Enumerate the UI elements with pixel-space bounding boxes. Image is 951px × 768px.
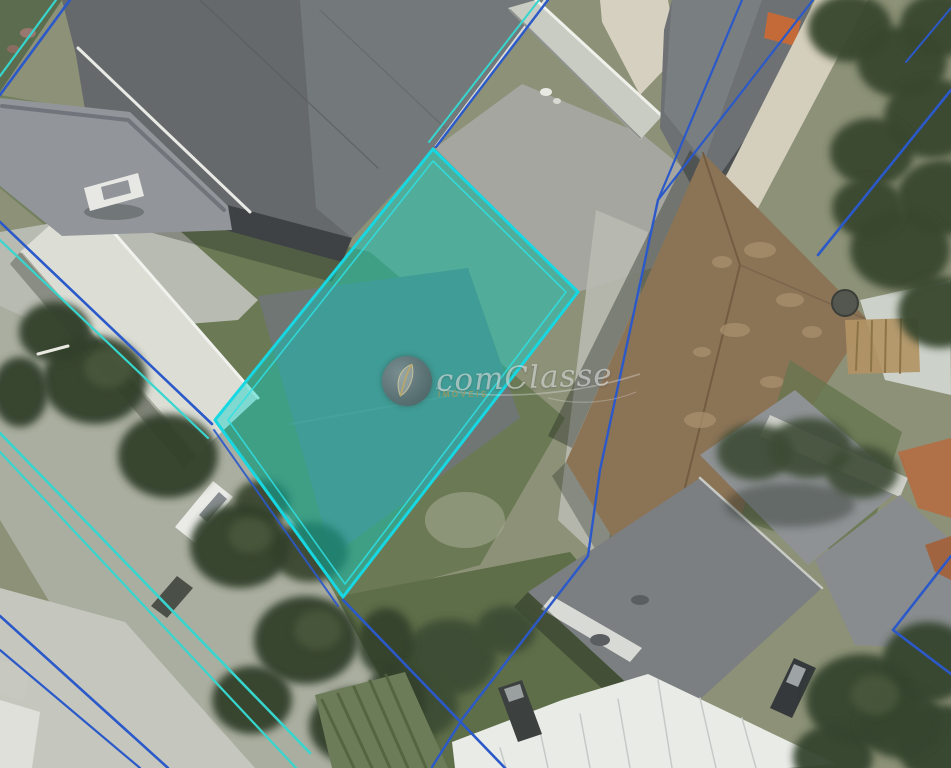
deck-slat [885,320,886,372]
roof-vent [631,595,649,605]
tree-shadow [725,483,855,527]
deck-slat [871,321,872,371]
tile-mottle [760,376,784,388]
tile-mottle [744,242,776,258]
tree-highlight [851,675,899,715]
tile-mottle [720,323,750,337]
tree-highlight [294,610,342,650]
pavement-mark [553,98,561,104]
tile-mottle [712,256,732,268]
tile-mottle [776,293,804,307]
tile-mottle [693,347,711,357]
deck-slat [900,319,901,373]
street-tree [118,414,218,498]
tree-canopy [476,606,536,654]
tree-highlight [228,517,272,553]
dirt-patch [425,492,505,548]
roof-vent [590,634,610,646]
street-tree [19,302,91,362]
tree-canopy [832,178,904,238]
aerial-photo: comClasse IMÓVEIS [0,0,951,768]
pavement-mark [540,88,552,96]
tile-mottle [684,412,716,428]
tile-mottle [802,326,822,338]
satellite-imagery-layer [0,0,951,768]
tree-highlight [84,348,132,388]
